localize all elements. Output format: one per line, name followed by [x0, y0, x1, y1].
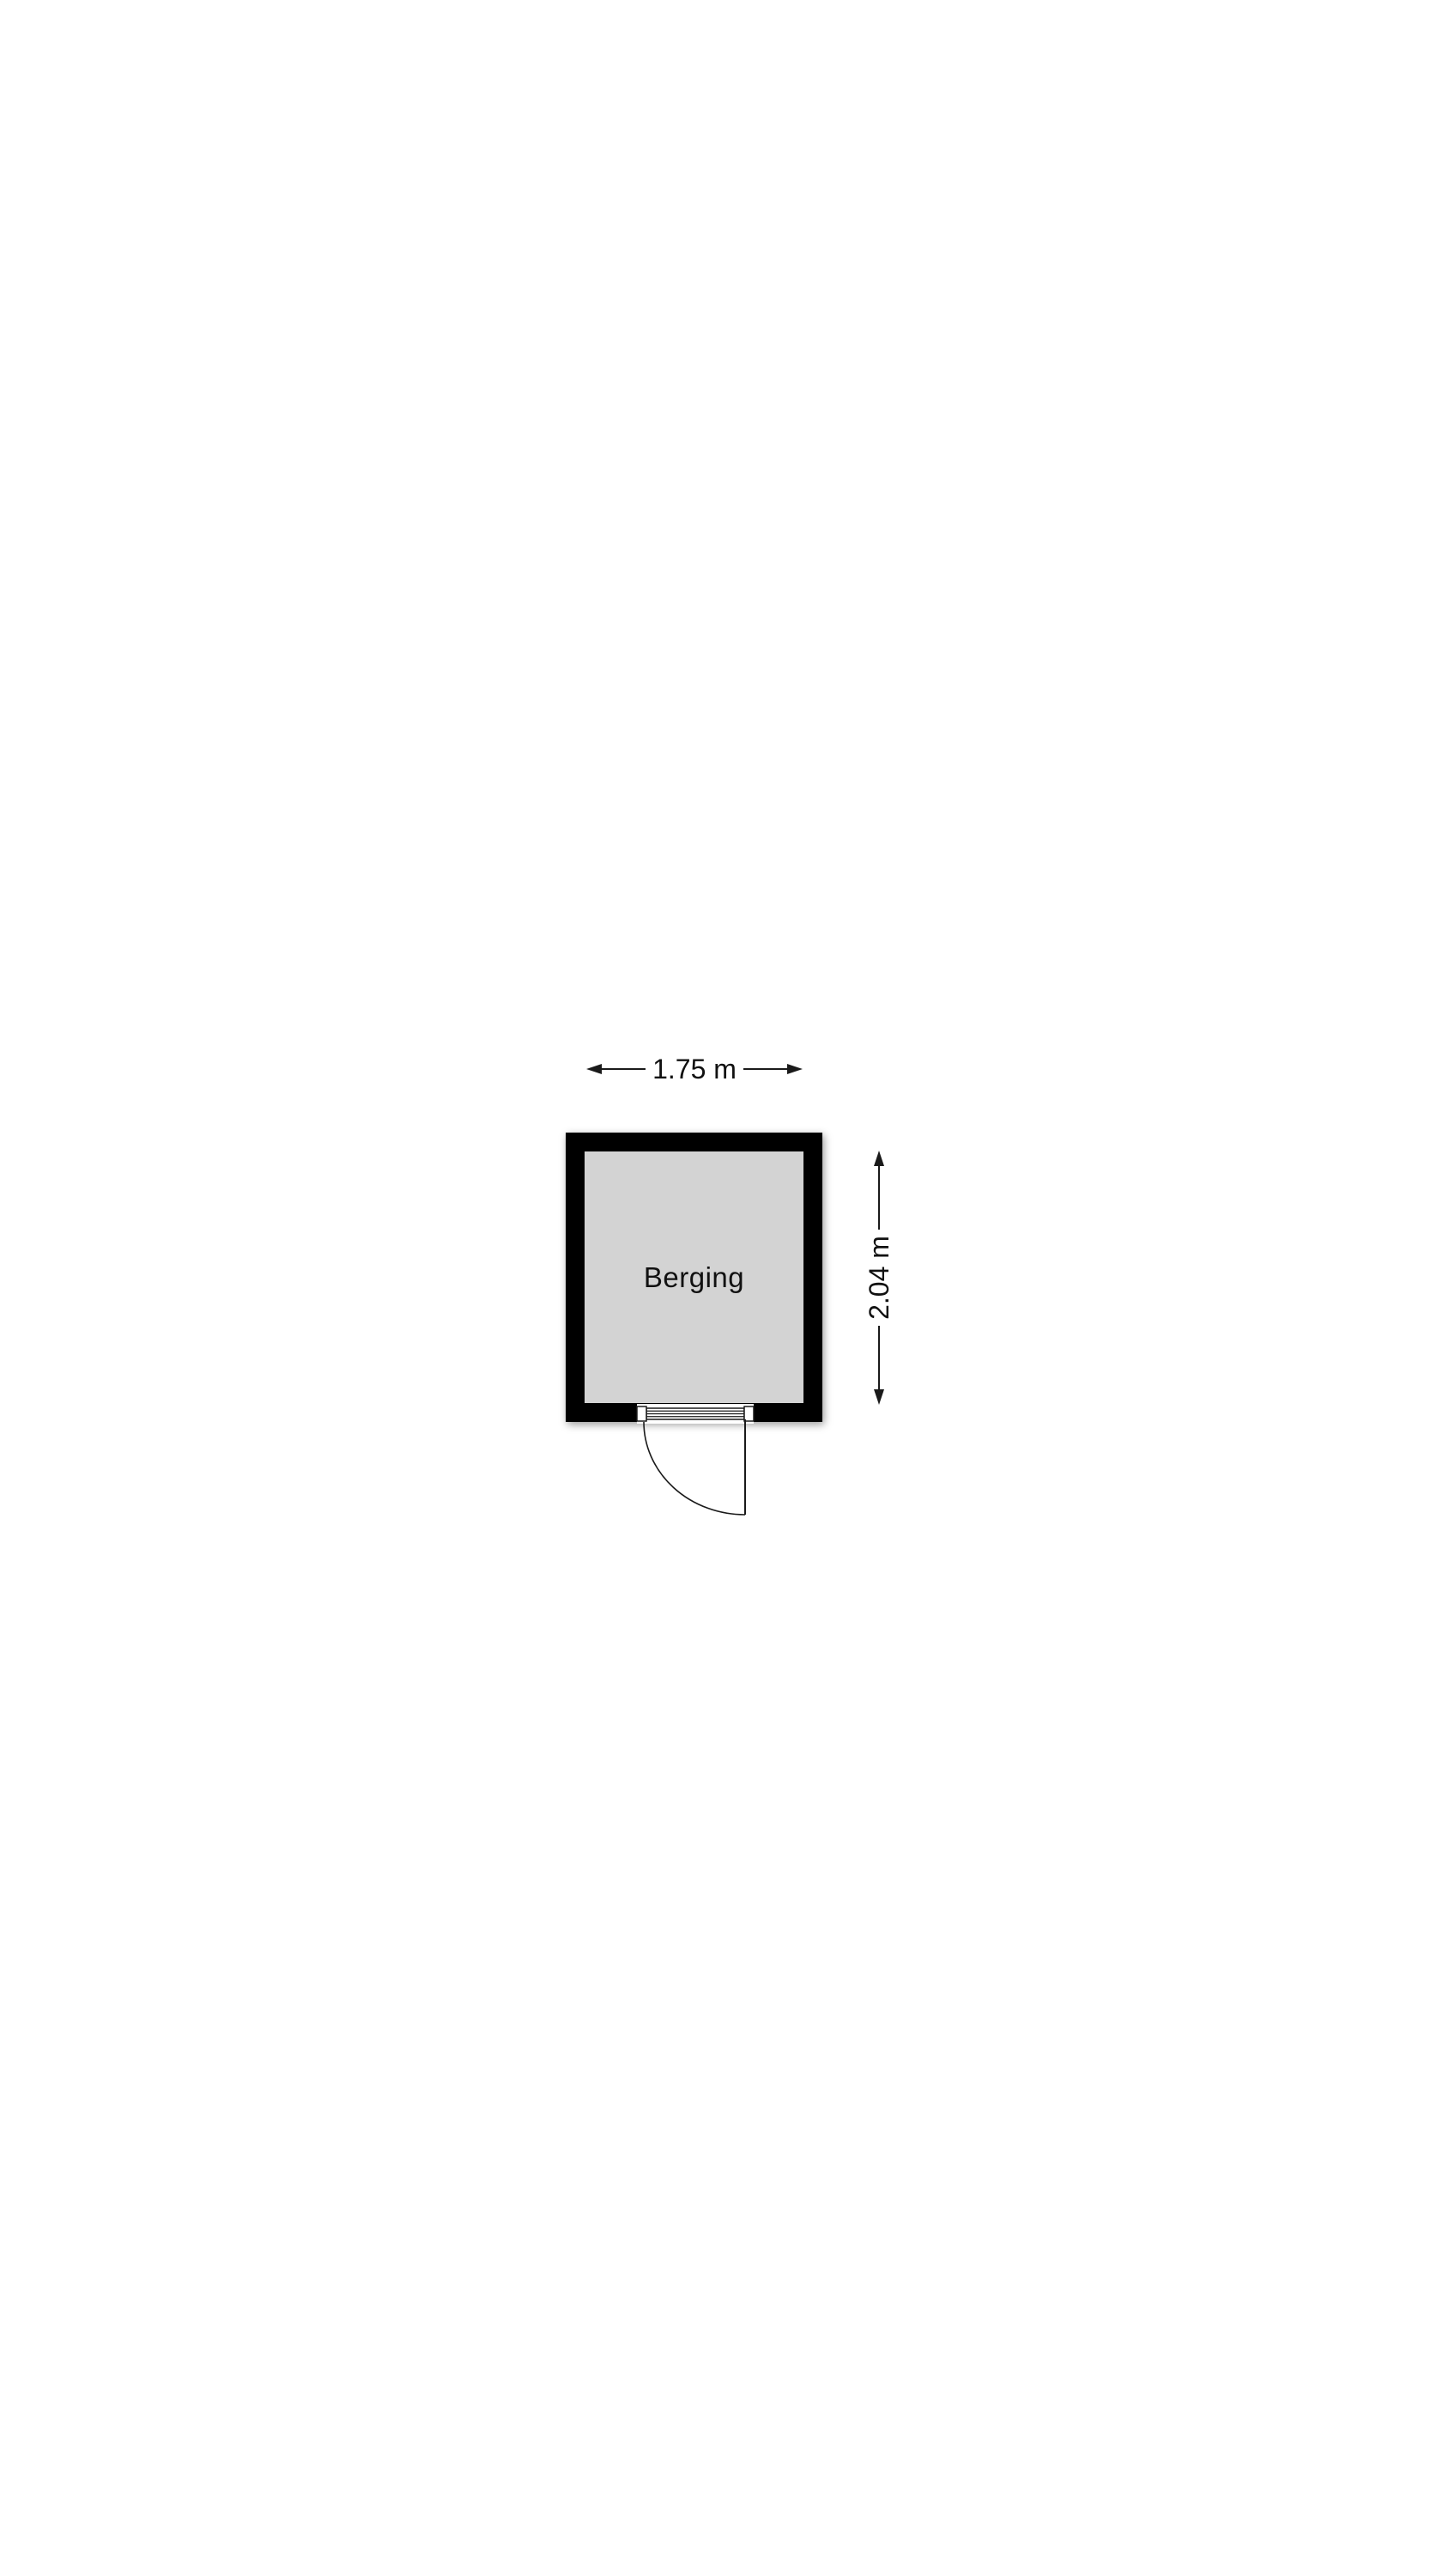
dimension-height-label: 2.04 m	[865, 1236, 893, 1320]
dimension-line-segment	[878, 1326, 880, 1389]
arrow-up-icon	[874, 1151, 884, 1166]
door-jamb-right	[744, 1406, 754, 1421]
door-swing-arc	[644, 1422, 745, 1515]
arrow-down-icon	[874, 1389, 884, 1405]
door-jamb-left	[637, 1406, 646, 1421]
floor-plan-canvas: 1.75 m Berging 2.04 m	[0, 0, 1449, 2576]
arrow-right-icon	[787, 1064, 803, 1074]
dimension-line-segment	[602, 1068, 646, 1070]
dimension-line-segment	[878, 1166, 880, 1230]
room-floor: Berging	[585, 1151, 803, 1403]
door-symbol	[631, 1395, 768, 1533]
dimension-height-label-box: 2.04 m	[865, 1230, 893, 1326]
arrow-left-icon	[586, 1064, 602, 1074]
dimension-width: 1.75 m	[586, 1055, 803, 1083]
room-berging: Berging	[566, 1133, 822, 1422]
room-label: Berging	[644, 1263, 744, 1291]
dimension-line-segment	[743, 1068, 787, 1070]
dimension-width-label: 1.75 m	[646, 1055, 743, 1083]
dimension-height: 2.04 m	[865, 1151, 893, 1405]
